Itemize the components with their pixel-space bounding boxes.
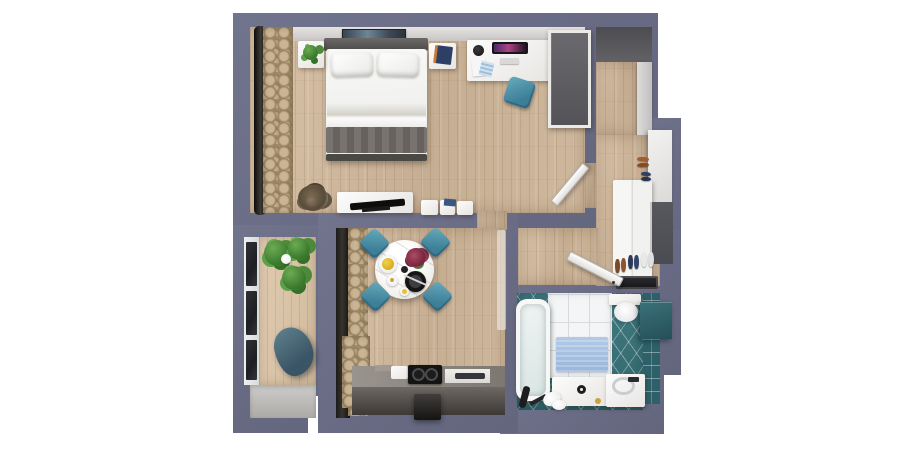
bathtub-basin [520,304,546,396]
heel-navy-2 [634,255,639,269]
shoe-cabinet [637,62,652,136]
bed-foot-rail [326,154,427,161]
toilet-bowl [614,302,638,322]
faucet-cap [580,388,583,391]
duvet-fold [327,103,426,129]
burner-right [425,368,438,381]
person [473,45,484,56]
heel-navy-1 [628,255,633,269]
glass-pane-3 [246,340,257,380]
shoe-orange-1 [637,157,649,161]
cutting-board-gray [375,365,392,372]
towel-roll-2 [552,400,566,410]
range-hood [414,394,441,420]
sneaker-white-2 [648,252,654,267]
book [433,45,453,65]
door-handle [612,281,615,284]
storage-box-1 [421,200,438,215]
wardrobe [548,30,591,128]
wall-highlight [497,230,506,330]
monitor-screen [494,44,526,52]
pillow-right [377,52,420,77]
blue-folder [444,198,457,206]
lemons [382,258,394,270]
shoe-navy-2 [641,177,651,181]
washer-panel-slot [628,377,639,382]
soap-gold [595,398,601,404]
gray-throw-blanket [326,127,427,153]
blue-bath-mat [556,337,608,372]
bedroom-curtains [263,27,293,213]
teapot-lid [390,278,394,282]
sneaker-white-1 [641,252,647,267]
flower-bouquet [406,248,426,267]
cutting-board-white [391,366,408,379]
corridor-floor [518,228,598,285]
balcony-plant-3 [282,266,306,290]
heel-brown-2 [621,258,626,272]
balcony-plant-2 [288,238,310,260]
pillow-left [331,52,374,77]
balcony-plant-pot [281,254,291,264]
burner-left [412,368,425,381]
heel-brown-1 [615,259,620,273]
glass-pane-1 [246,242,257,286]
apartment-floorplan [0,0,900,450]
floor-plant-pot [306,196,318,207]
entry-floor-top [596,62,637,135]
glass-pane-2 [246,291,257,335]
keyboard [500,58,519,64]
balcony-concrete-slab [250,385,316,418]
storage-box-3 [457,201,473,215]
entry-dark-niche [596,27,652,62]
cup [401,266,408,273]
teal-wall-cabinet [640,302,672,339]
nightstand-plant [303,45,318,60]
butter-dish [402,289,407,294]
sink-slot [455,373,485,379]
